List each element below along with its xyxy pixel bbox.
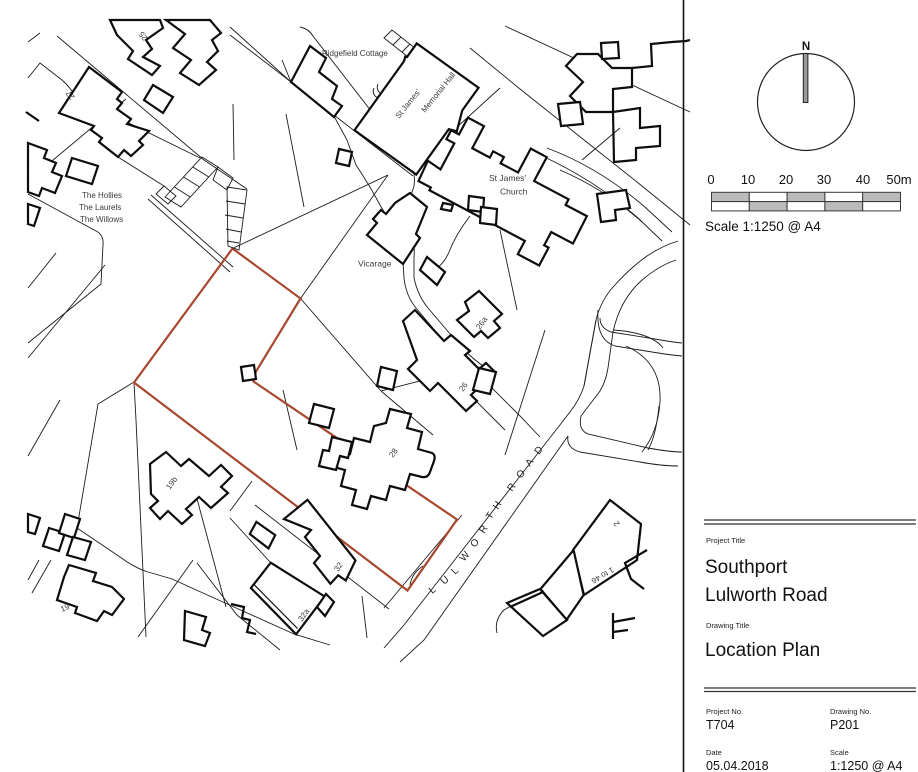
svg-text:Ridgefield Cottage: Ridgefield Cottage [322,49,388,58]
svg-text:Lulworth Road: Lulworth Road [705,585,828,606]
svg-text:Southport: Southport [705,557,788,578]
svg-text:Church: Church [500,187,528,197]
svg-text:30: 30 [817,172,831,187]
svg-text:05.04.2018: 05.04.2018 [706,759,769,772]
svg-text:40: 40 [856,172,870,187]
svg-text:20: 20 [779,172,793,187]
svg-text:Scale 1:1250 @ A4: Scale 1:1250 @ A4 [705,219,821,234]
svg-text:1:1250 @ A4: 1:1250 @ A4 [830,759,903,772]
svg-text:The Hollies: The Hollies [82,191,122,200]
svg-text:T704: T704 [706,718,735,732]
svg-text:Drawing No.: Drawing No. [830,707,871,716]
svg-text:10: 10 [741,172,755,187]
svg-text:Location Plan: Location Plan [705,640,820,661]
svg-text:0: 0 [707,172,714,187]
svg-text:Scale: Scale [830,748,849,757]
svg-text:Vicarage: Vicarage [358,259,392,269]
svg-text:Project Title: Project Title [706,536,745,545]
svg-text:Project No.: Project No. [706,707,743,716]
svg-text:St James’: St James’ [489,173,526,183]
svg-text:P201: P201 [830,718,859,732]
svg-text:Drawing Title: Drawing Title [706,621,749,630]
svg-text:50m: 50m [886,172,911,187]
svg-text:Date: Date [706,748,722,757]
svg-text:N: N [802,41,810,53]
svg-text:The Willows: The Willows [80,215,123,224]
svg-text:The Laurels: The Laurels [79,203,121,212]
